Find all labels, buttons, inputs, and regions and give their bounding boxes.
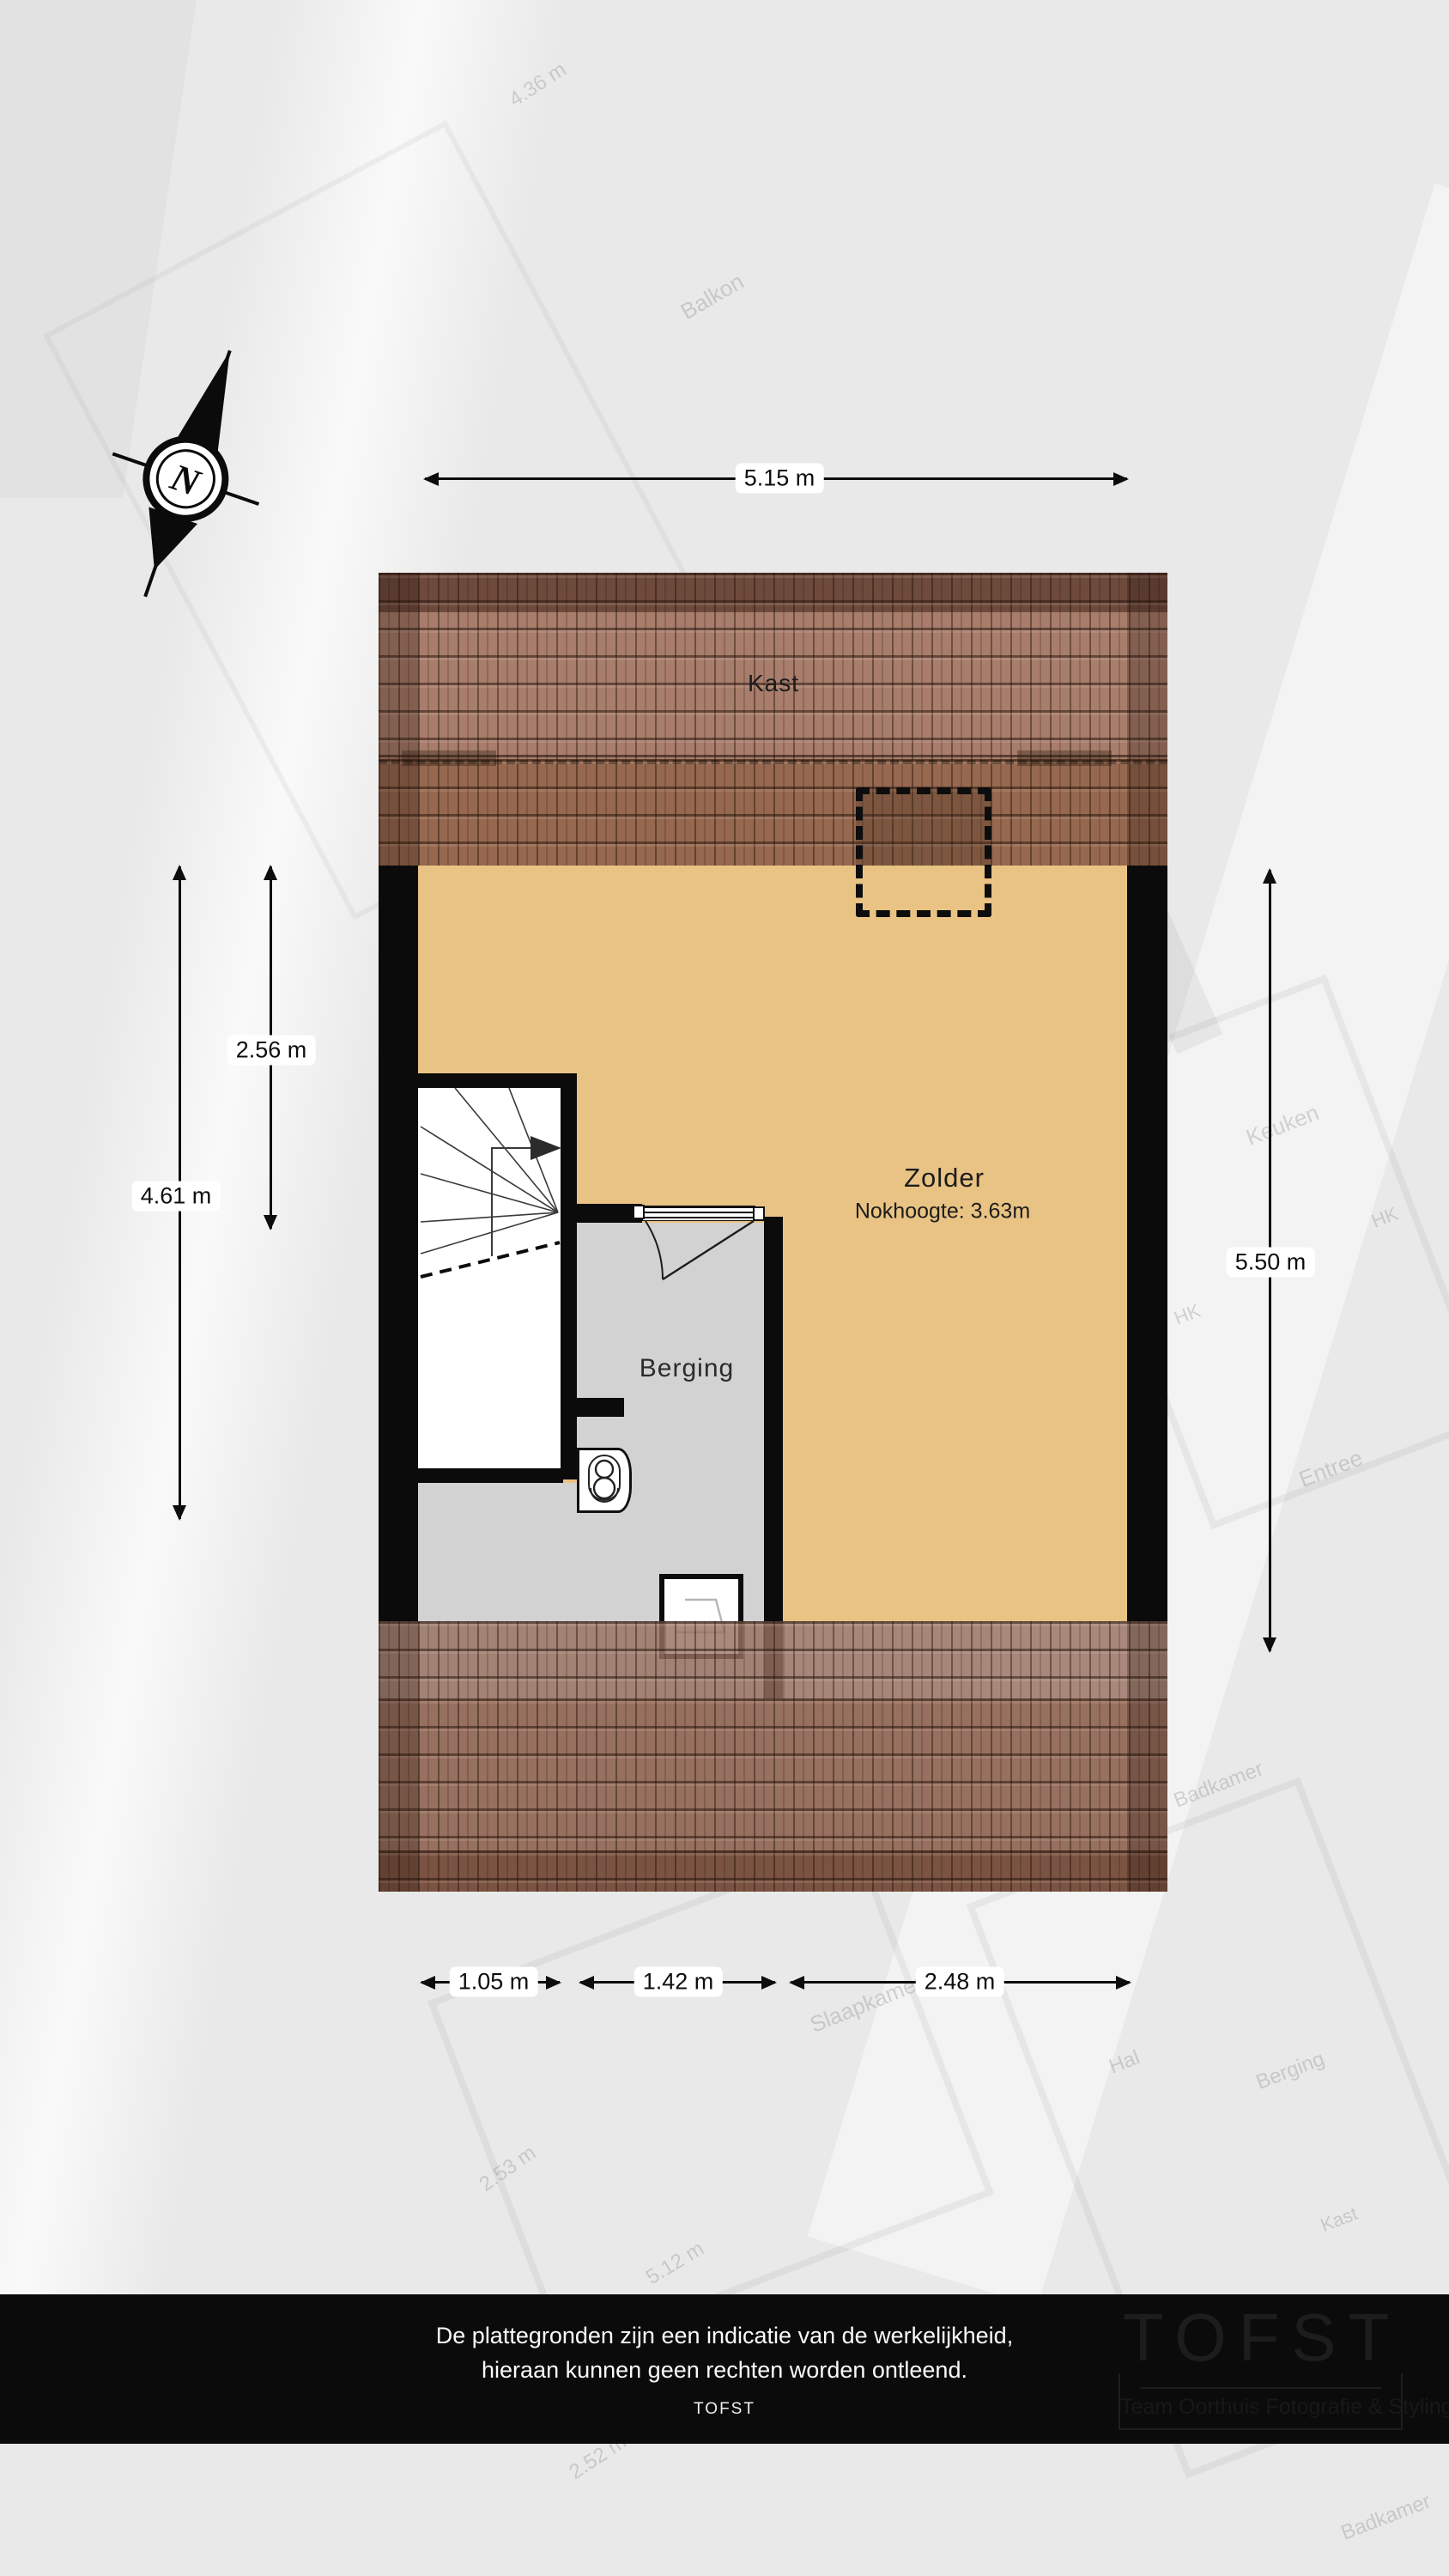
dimension-left-inner-label: 2.56 m: [227, 1036, 316, 1066]
wall-left: [379, 866, 418, 1621]
berging-door-swing: [635, 1206, 773, 1300]
roof-bottom-wall-shade-left: [379, 1621, 419, 1892]
dimension-bottom-3-label: 2.48 m: [916, 1967, 1004, 1997]
tofst-logo: Team Oorthuis Fotografie & Styling TOFST: [1116, 2306, 1408, 2437]
washer-top-circle: [596, 1461, 613, 1478]
stairs-direction-line: [492, 1148, 530, 1256]
zolder-label: Zolder: [904, 1163, 985, 1194]
stairwell-top-wall: [418, 1073, 561, 1088]
tofst-logo-subtitle: Team Oorthuis Fotografie & Styling: [1120, 2395, 1401, 2420]
roof-seam-patch: [1017, 750, 1112, 766]
washer-alcove-wall: [561, 1398, 624, 1417]
washer-bottom-circle: [594, 1478, 615, 1498]
dimension-top-label: 5.15 m: [736, 464, 824, 494]
washer-unit: [577, 1448, 632, 1513]
wall-right: [1127, 866, 1167, 1621]
skylight-dashed-outline: [856, 787, 991, 917]
stairs-treads: [418, 1088, 564, 1468]
tofst-logo-title: TOFST: [1111, 2301, 1413, 2373]
roof-bottom-eaves: [379, 1850, 1167, 1892]
stairwell-bottom-wall: [418, 1468, 563, 1483]
roof-bottom-wall-shade-right: [1127, 1621, 1167, 1892]
zolder-nokhoogte-label: Nokhoogte: 3.63m: [855, 1200, 1030, 1224]
dimension-left-outer-label: 4.61 m: [132, 1182, 221, 1212]
door-arc: [646, 1221, 663, 1279]
dimension-bottom-1-label: 1.05 m: [450, 1967, 538, 1997]
tofst-logo-separator: [1140, 2387, 1381, 2389]
door-leaf-line: [663, 1221, 754, 1279]
roof-top-wall-shade-right: [1127, 573, 1167, 866]
roof-top-ridge: [379, 573, 1167, 612]
kast-label: Kast: [748, 670, 799, 697]
dimension-bottom-2-label: 1.42 m: [634, 1967, 723, 1997]
roof-top-lower: [379, 759, 1167, 866]
floorplan-page: 4.36 m Balkon Keuken HK HK Entree Badkam…: [0, 0, 1449, 2576]
stairs-direction-arrow: [530, 1136, 561, 1160]
berging-label: Berging: [640, 1354, 734, 1383]
roof-top-wall-shade-left: [379, 573, 419, 866]
background-label: Badkamer: [1338, 2489, 1434, 2545]
dimension-right-label: 5.50 m: [1227, 1248, 1315, 1278]
background-label: Balkon: [676, 268, 749, 325]
